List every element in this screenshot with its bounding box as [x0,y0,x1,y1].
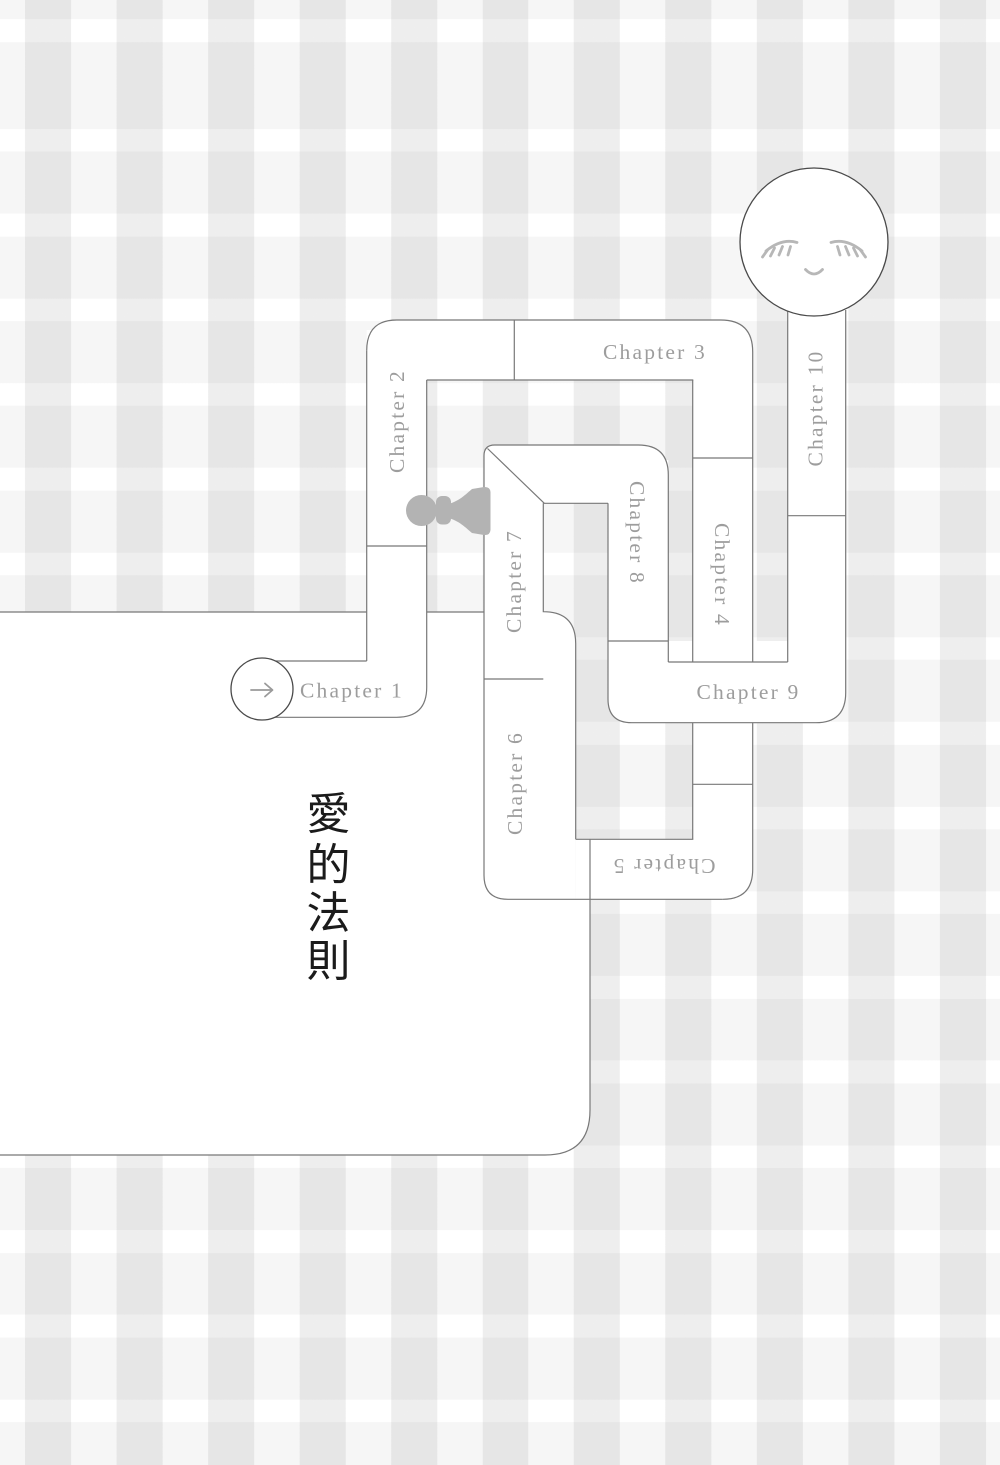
title-char-4: 則 [307,937,351,986]
chapter-4-label[interactable]: Chapter 4 [710,523,734,627]
title-panel-lower [0,899,590,1155]
board-game-toc: Chapter 1 Chapter 2 Chapter 3 Chapter 4 … [0,0,1000,1465]
segment-underpass [693,723,753,843]
title-char-3: 法 [307,889,351,938]
pawn-head [406,495,437,526]
chapter-9-label[interactable]: Chapter 9 [697,680,801,704]
page-title: 愛 的 法 則 [307,790,351,986]
title-char-1: 愛 [307,790,351,839]
chapter-10-label[interactable]: Chapter 10 [804,350,828,467]
chapter-3-label[interactable]: Chapter 3 [603,340,707,364]
title-char-2: 的 [307,841,351,890]
goal-face-circle [740,168,888,316]
goal-node [740,168,888,316]
chapter-5-label[interactable]: Chapter 5 [612,854,716,878]
start-circle [231,658,293,720]
chapter-2-label[interactable]: Chapter 2 [385,369,409,473]
chapter-1-label[interactable]: Chapter 1 [300,679,404,703]
start-node[interactable] [231,658,293,720]
chapter-7-label[interactable]: Chapter 7 [502,529,526,633]
chapter-6-label[interactable]: Chapter 6 [503,731,527,835]
book-toc-page: { "title": { "text": "愛的法則", "chars": ["… [0,0,1000,1465]
pawn-body [448,487,491,535]
segment-chapter-9-riser [788,516,846,651]
chapter-8-label[interactable]: Chapter 8 [625,481,649,585]
